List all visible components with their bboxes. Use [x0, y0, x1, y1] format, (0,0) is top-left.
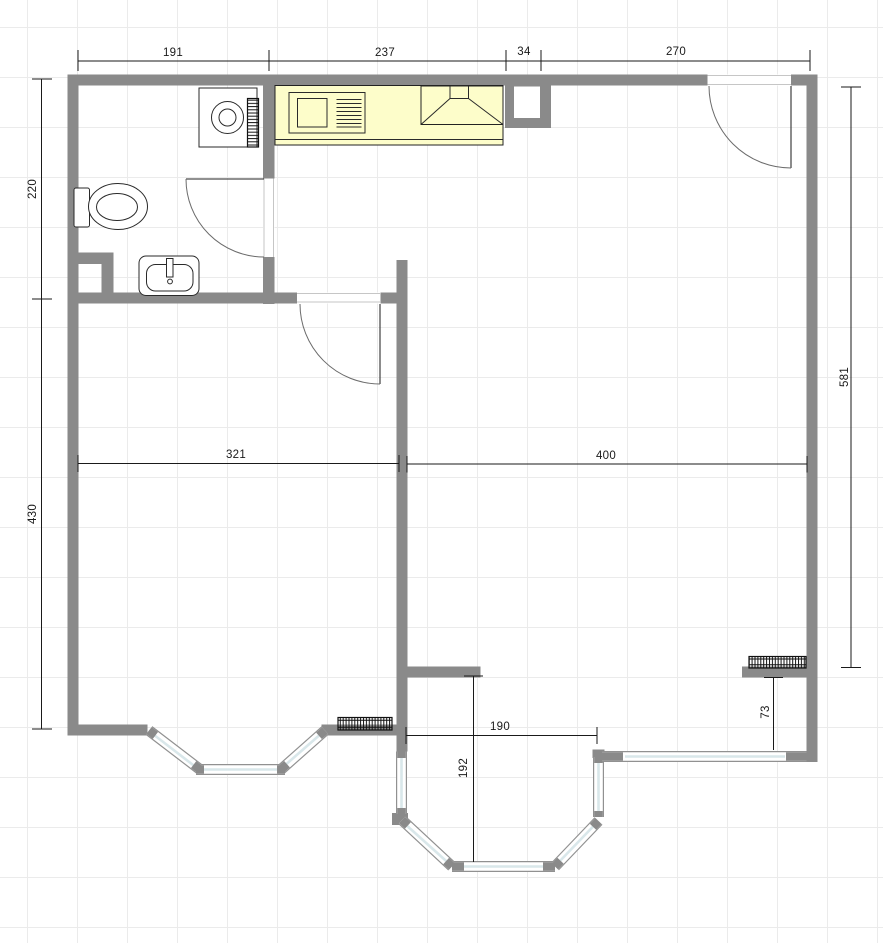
wall-bath-partition-top[interactable] [263, 86, 275, 179]
radiator-right[interactable] [749, 657, 806, 669]
wall-right[interactable] [807, 86, 818, 763]
bathroom-door-opening [263, 179, 275, 258]
entry-door-opening [708, 75, 792, 86]
floor-plan-drawing [0, 0, 883, 943]
washbasin[interactable] [139, 256, 199, 296]
living-room-door[interactable] [297, 293, 380, 385]
dim-label-581[interactable]: 581 [839, 367, 851, 387]
wall-middle[interactable] [397, 260, 408, 752]
wall-closet-h[interactable] [68, 253, 114, 265]
dim-label-400[interactable]: 400 [596, 450, 616, 462]
wall-bottom-left-a[interactable] [68, 725, 148, 736]
bathroom-door-swing-arc [186, 179, 264, 257]
walls[interactable] [68, 75, 818, 826]
radiator-bottom-left[interactable] [338, 718, 392, 731]
dim-label-270[interactable]: 270 [666, 46, 686, 58]
dim-label-220[interactable]: 220 [27, 179, 39, 199]
wall-top-right[interactable] [791, 75, 818, 86]
entry-door-swing-arc [709, 86, 791, 168]
niche-opening [514, 87, 540, 119]
floor-plan-canvas[interactable]: 191 237 34 270 220 430 581 321 400 190 7… [0, 0, 883, 943]
towel-radiator[interactable] [248, 99, 259, 148]
bathroom-door[interactable] [186, 179, 275, 258]
dim-label-34[interactable]: 34 [517, 46, 530, 58]
cooker-hood[interactable] [421, 86, 503, 125]
wall-closet-v[interactable] [102, 264, 114, 293]
dim-label-321[interactable]: 321 [226, 449, 246, 461]
bay-window-left[interactable] [149, 731, 325, 770]
dim-label-190[interactable]: 190 [490, 721, 510, 733]
dim-label-237[interactable]: 237 [375, 47, 395, 59]
bay-window-center[interactable] [402, 752, 599, 867]
dim-label-192[interactable]: 192 [458, 758, 470, 778]
living-room-door-swing-arc [300, 304, 380, 384]
dim-label-191[interactable]: 191 [163, 47, 183, 59]
dim-label-73[interactable]: 73 [760, 705, 772, 718]
dim-label-430[interactable]: 430 [27, 504, 39, 524]
entry-door[interactable] [708, 75, 792, 169]
wall-left[interactable] [68, 75, 79, 736]
wall-top-left[interactable] [68, 75, 708, 86]
toilet[interactable] [74, 184, 148, 230]
